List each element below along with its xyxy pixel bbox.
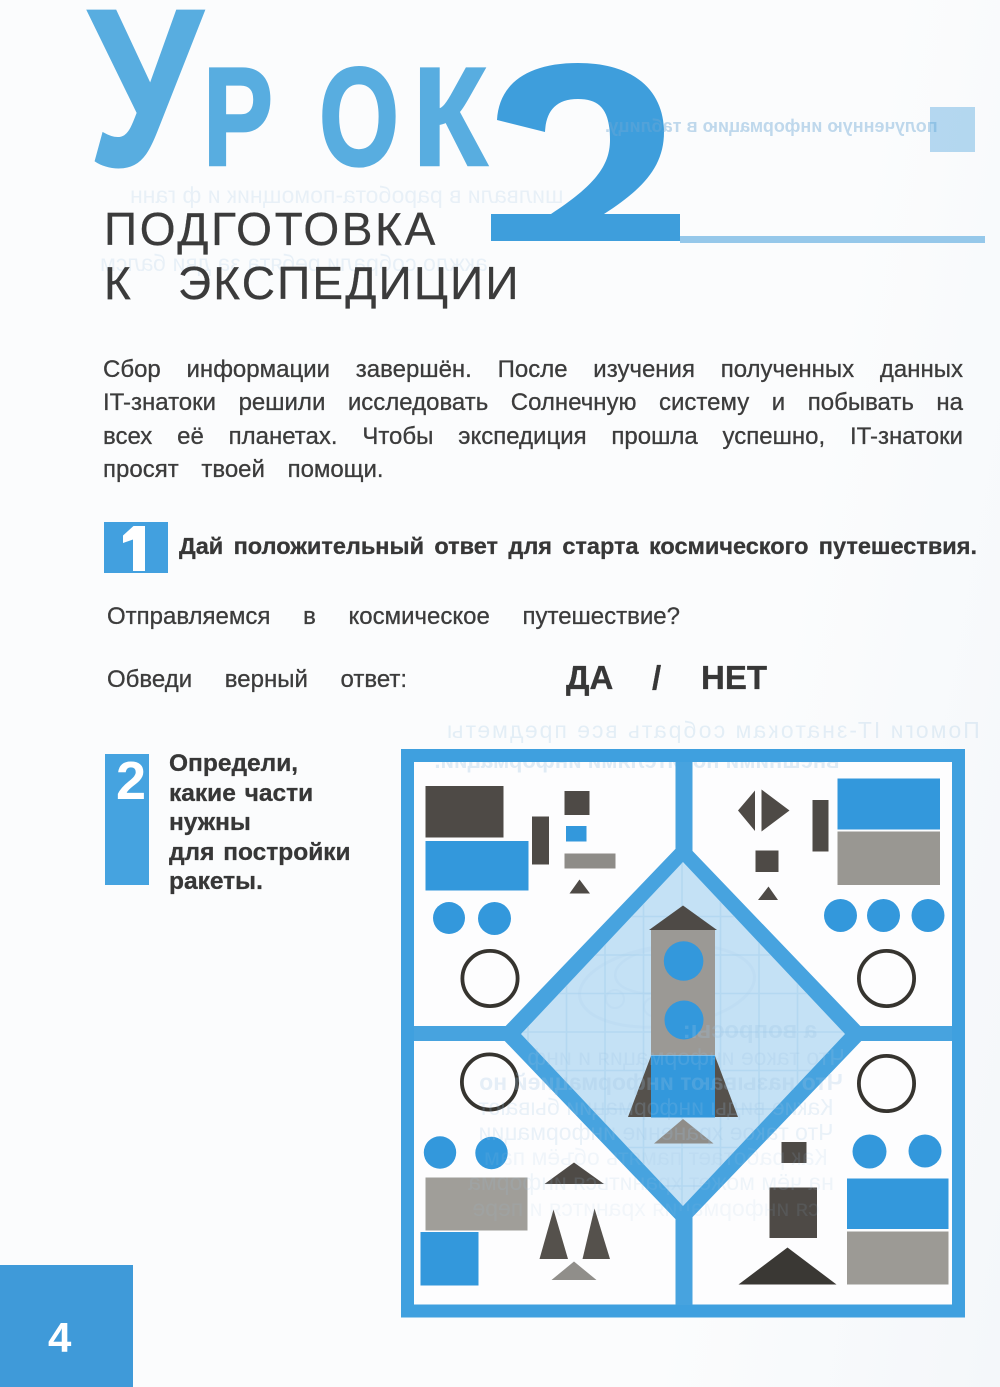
svg-text:Р: Р <box>203 38 273 195</box>
svg-text:а вопросы:: а вопросы: <box>683 1017 817 1044</box>
svg-text:Какие виды информации бывают: Какие виды информации бывают <box>478 1094 834 1120</box>
svg-text:О: О <box>319 38 399 195</box>
svg-text:на чём может храниться информа: на чём может храниться информа <box>468 1169 834 1195</box>
svg-text:Что такое хранение информации: Что такое хранение информации <box>479 1119 834 1145</box>
svg-text:К: К <box>413 38 487 195</box>
svg-text:ся информация хранится и пере: ся информация хранится и пере <box>472 1195 819 1221</box>
svg-text:Как работает память объём пам: Как работает память объём пам <box>484 1144 828 1170</box>
svg-text:Что называют информацией но: Что называют информацией но <box>479 1069 843 1095</box>
svg-text:Что такое информация и инф: Что такое информация и инф <box>527 1044 844 1070</box>
